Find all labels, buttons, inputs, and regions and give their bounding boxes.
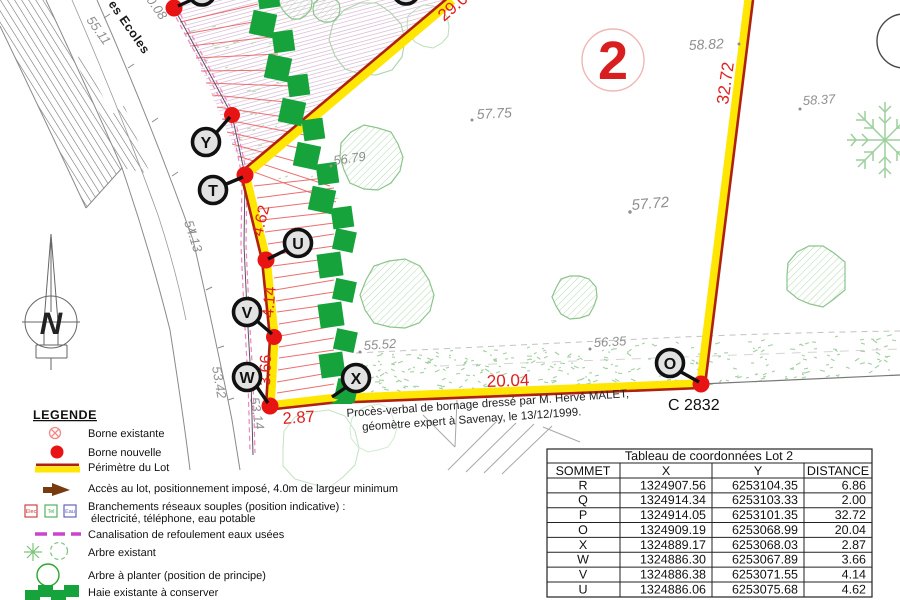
svg-text:V: V xyxy=(579,568,588,582)
svg-text:Tel: Tel xyxy=(47,509,54,515)
svg-text:2.87: 2.87 xyxy=(842,538,866,552)
svg-text:6253067.89: 6253067.89 xyxy=(732,553,798,567)
svg-text:6253068.99: 6253068.99 xyxy=(732,523,798,537)
svg-text:2.00: 2.00 xyxy=(842,493,866,507)
svg-text:P: P xyxy=(579,508,587,522)
svg-text:Accès au lot, positionnement i: Accès au lot, positionnement imposé, 4.0… xyxy=(88,483,398,495)
svg-text:57.72: 57.72 xyxy=(631,194,671,214)
svg-text:Elec: Elec xyxy=(26,509,37,515)
svg-text:58.37: 58.37 xyxy=(802,91,836,108)
svg-text:Périmètre du Lot: Périmètre du Lot xyxy=(88,462,169,474)
svg-text:6.86: 6.86 xyxy=(842,478,866,492)
svg-text:W: W xyxy=(577,553,589,567)
svg-text:57.75: 57.75 xyxy=(476,104,512,122)
svg-text:Branchements réseaux souples (: Branchements réseaux souples (position i… xyxy=(88,501,345,513)
svg-text:U: U xyxy=(292,236,304,253)
svg-text:6253103.33: 6253103.33 xyxy=(732,493,798,507)
svg-text:Tableau de coordonnées Lot 2: Tableau de coordonnées Lot 2 xyxy=(625,449,793,463)
svg-text:V: V xyxy=(242,305,253,322)
svg-text:O: O xyxy=(664,356,676,373)
svg-text:1324914.34: 1324914.34 xyxy=(640,493,706,507)
svg-text:6253075.68: 6253075.68 xyxy=(732,582,798,596)
svg-text:Eau: Eau xyxy=(65,509,75,515)
svg-text:Canalisation de refoulement ea: Canalisation de refoulement eaux usées xyxy=(88,529,285,541)
svg-text:Q: Q xyxy=(578,493,588,507)
svg-text:6253071.55: 6253071.55 xyxy=(732,568,798,582)
svg-text:Arbre à planter (position de p: Arbre à planter (position de principe) xyxy=(88,570,266,582)
svg-text:W: W xyxy=(239,370,255,387)
svg-text:O: O xyxy=(578,523,588,537)
svg-text:1324889.17: 1324889.17 xyxy=(640,538,706,552)
svg-text:X: X xyxy=(662,464,671,478)
svg-text:Borne nouvelle: Borne nouvelle xyxy=(88,447,161,459)
svg-text:56.35: 56.35 xyxy=(593,333,627,350)
svg-text:2: 2 xyxy=(598,31,628,91)
svg-text:SOMMET: SOMMET xyxy=(556,464,611,478)
svg-text:Arbre existant: Arbre existant xyxy=(88,547,156,559)
svg-text:Haie existante à conserver: Haie existante à conserver xyxy=(88,587,219,599)
svg-text:DISTANCE: DISTANCE xyxy=(807,464,869,478)
svg-text:6253104.35: 6253104.35 xyxy=(732,478,798,492)
svg-text:4.14: 4.14 xyxy=(260,286,280,319)
svg-text:Y: Y xyxy=(754,464,763,478)
svg-text:Y: Y xyxy=(201,135,212,152)
svg-text:3.66: 3.66 xyxy=(842,553,866,567)
svg-text:1324886.06: 1324886.06 xyxy=(640,582,706,596)
svg-text:58.82: 58.82 xyxy=(688,35,724,53)
svg-text:Borne existante: Borne existante xyxy=(88,428,164,440)
svg-text:1324886.30: 1324886.30 xyxy=(640,553,706,567)
svg-text:N: N xyxy=(40,306,63,341)
svg-text:C 2832: C 2832 xyxy=(668,397,720,414)
svg-text:LEGENDE: LEGENDE xyxy=(33,408,97,422)
svg-text:R: R xyxy=(578,478,587,492)
svg-text:1324886.38: 1324886.38 xyxy=(640,568,706,582)
svg-text:1324907.56: 1324907.56 xyxy=(640,478,706,492)
svg-text:55.52: 55.52 xyxy=(363,336,397,353)
svg-text:U: U xyxy=(578,582,587,596)
svg-text:1324914.05: 1324914.05 xyxy=(640,508,706,522)
svg-text:T: T xyxy=(208,183,218,200)
svg-text:4.14: 4.14 xyxy=(842,568,866,582)
svg-text:4.62: 4.62 xyxy=(842,582,866,596)
svg-text:X: X xyxy=(351,371,362,388)
svg-text:6253101.35: 6253101.35 xyxy=(732,508,798,522)
svg-text:20.04: 20.04 xyxy=(486,371,529,391)
svg-text:électricité, téléphone, eau po: électricité, téléphone, eau potable xyxy=(91,513,256,525)
svg-text:20.04: 20.04 xyxy=(835,523,866,537)
svg-text:X: X xyxy=(579,538,588,552)
svg-text:32.72: 32.72 xyxy=(835,508,866,522)
svg-text:6253068.03: 6253068.03 xyxy=(732,538,798,552)
svg-text:2.87: 2.87 xyxy=(282,408,315,428)
svg-text:1324909.19: 1324909.19 xyxy=(640,523,706,537)
